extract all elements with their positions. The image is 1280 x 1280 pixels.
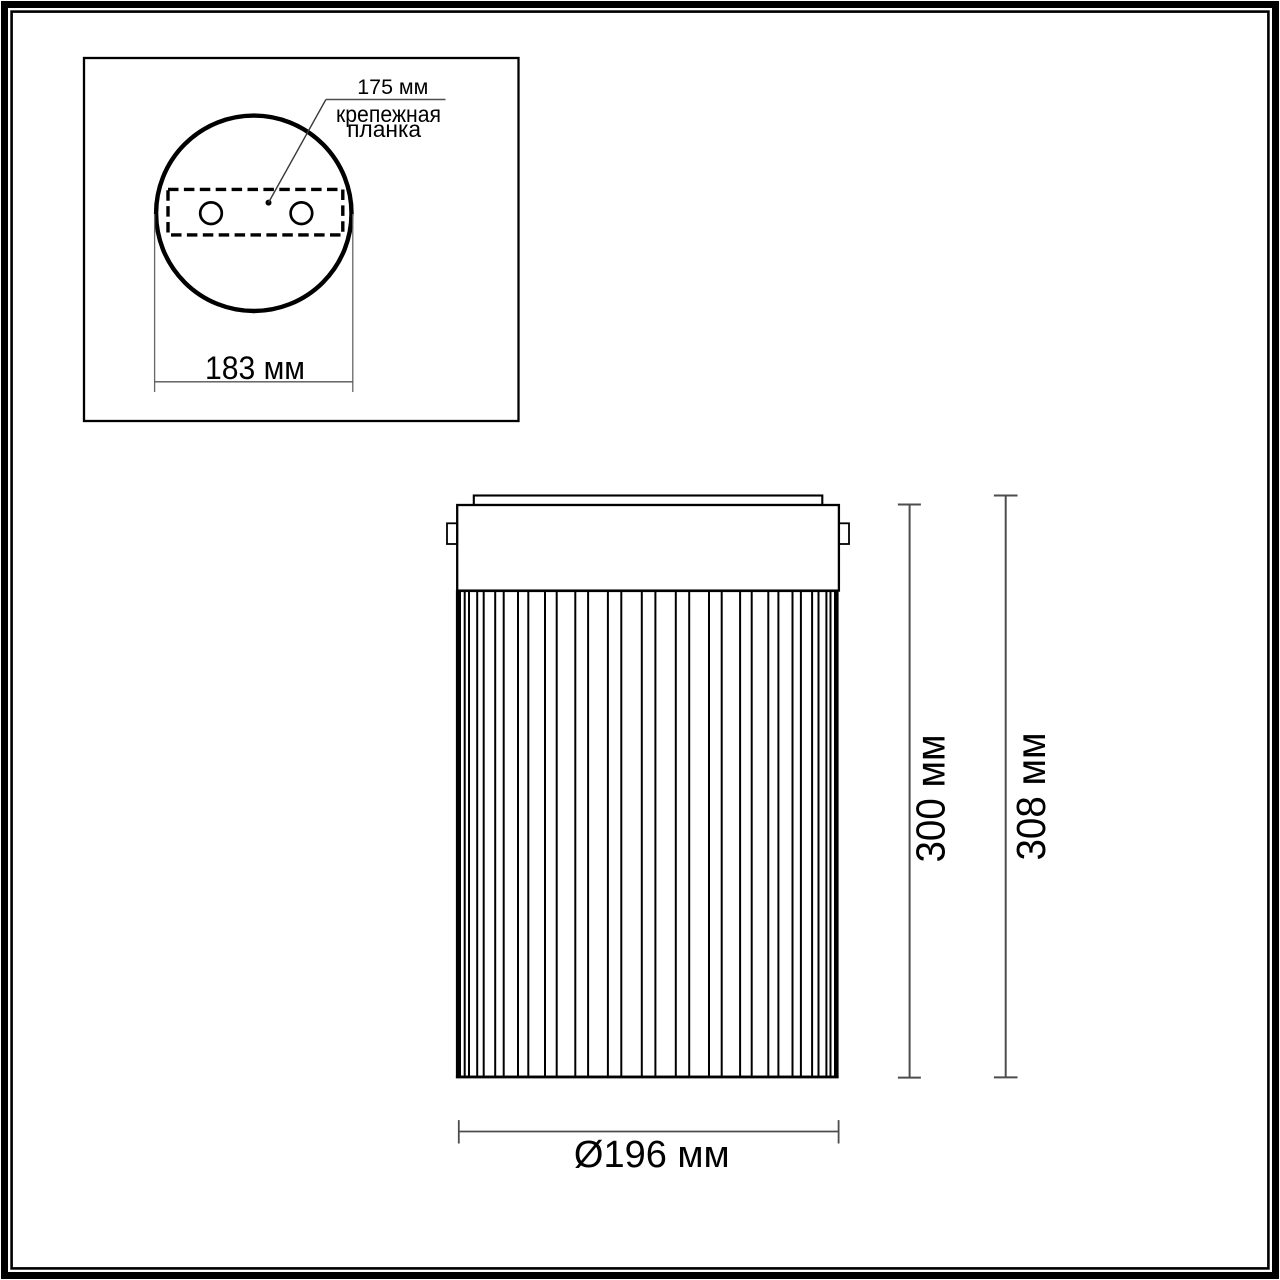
svg-text:183 мм: 183 мм bbox=[205, 350, 305, 386]
svg-text:300 мм: 300 мм bbox=[907, 735, 953, 863]
svg-text:308 мм: 308 мм bbox=[1008, 733, 1054, 861]
svg-text:Ø196 мм: Ø196 мм bbox=[574, 1134, 730, 1176]
svg-text:175 мм: 175 мм bbox=[357, 76, 428, 99]
svg-text:планка: планка bbox=[347, 116, 421, 142]
